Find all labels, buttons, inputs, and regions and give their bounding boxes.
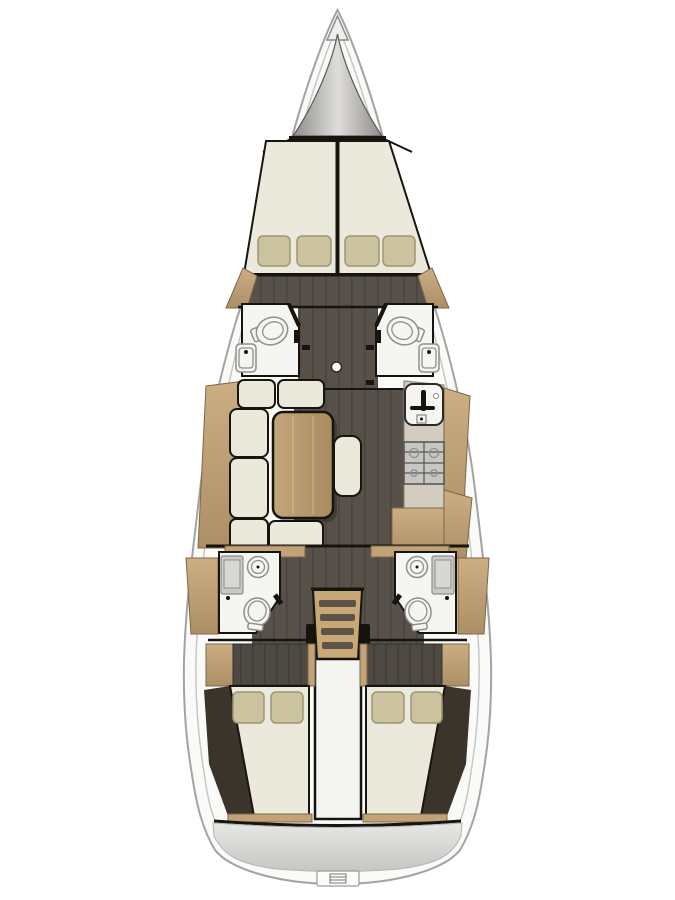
floor-fitting [366, 345, 374, 350]
sink-icon [236, 344, 256, 372]
door-leaf [376, 330, 381, 343]
vanity-knob [226, 596, 230, 600]
faucet-dot [244, 350, 248, 354]
vanity-panel [221, 556, 243, 600]
aft-pillow [372, 692, 404, 723]
cabin-wood-corner [442, 644, 469, 686]
forward-head-port [236, 304, 299, 376]
stove-icon [404, 442, 444, 484]
anchor-locker [293, 34, 382, 136]
faucet-dot [434, 394, 439, 399]
vanity-knob [445, 596, 449, 600]
forward-head-starboard [376, 304, 439, 376]
galley-sink-icon [405, 384, 443, 425]
ladder-tab [317, 871, 359, 886]
foot-wood-strip [228, 814, 312, 822]
berth-pillow [297, 236, 331, 266]
aft-pillow [411, 692, 442, 723]
stair-tread [321, 628, 354, 635]
galley [392, 381, 472, 558]
forward-locker-band [236, 274, 439, 308]
floor-fitting [366, 380, 374, 385]
cabin-wood-corner [206, 644, 233, 686]
vanity-inner [224, 560, 240, 588]
forward-cabin [226, 141, 449, 308]
stern-section [213, 821, 462, 886]
shower-drain [257, 566, 260, 569]
sofa-cushion [238, 380, 275, 408]
saloon-table [273, 412, 333, 518]
companionway [306, 589, 370, 819]
engine-compartment [315, 659, 361, 819]
vanity-inner [435, 560, 451, 588]
saloon [198, 380, 472, 558]
sink-icon [419, 344, 439, 372]
saloon-bench [334, 436, 361, 496]
door-leaf [294, 330, 299, 343]
sofa-cushion [278, 380, 324, 408]
shower-drain [416, 566, 419, 569]
floorplan-canvas [0, 0, 675, 900]
aft-pillow [271, 692, 303, 723]
mast-post [332, 362, 342, 372]
sofa-cushion [230, 458, 268, 518]
floor-fitting [302, 345, 310, 350]
toilet-foot [412, 623, 428, 631]
yacht-floorplan [0, 0, 675, 900]
shower-icon [248, 557, 269, 578]
headboard-panel [365, 644, 442, 685]
aft-pillow [233, 692, 264, 723]
vanity-panel [432, 556, 454, 600]
drain-dot [420, 418, 423, 421]
sofa-cushion [230, 409, 268, 457]
swim-ladder-icon [317, 871, 359, 886]
wood-sliver [360, 644, 367, 686]
aft-cabin-port [204, 640, 315, 822]
faucet-dot [427, 350, 431, 354]
berth-pillow [258, 236, 290, 266]
stair-tread [319, 600, 356, 607]
headboard-panel [233, 644, 310, 685]
stair-tread [322, 642, 353, 649]
wood-sliver [308, 644, 315, 686]
foot-wood-strip [363, 814, 447, 822]
shower-icon [407, 557, 428, 578]
swim-platform [213, 823, 462, 872]
wood-sole-starboard [458, 558, 489, 634]
toilet-foot [248, 623, 264, 631]
wood-sole-port [186, 558, 218, 634]
bow-section [263, 16, 412, 152]
stair-tread [320, 614, 355, 621]
berth-pillow [383, 236, 415, 266]
aft-cabin-starboard [360, 640, 471, 822]
faucet-bar-horizontal [410, 406, 435, 410]
berth-pillow [345, 236, 379, 266]
